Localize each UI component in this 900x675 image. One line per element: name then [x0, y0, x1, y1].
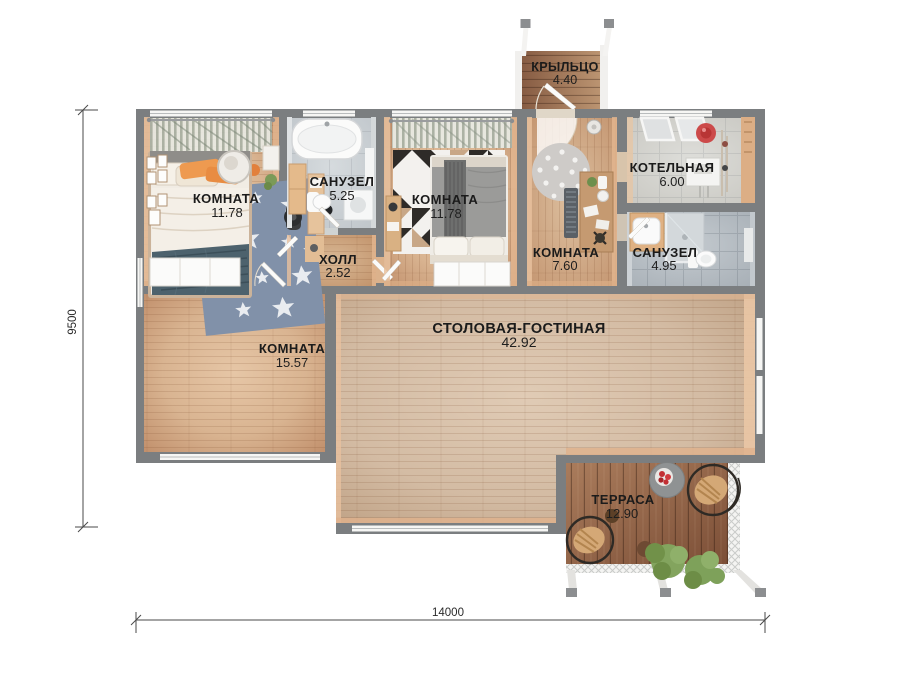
svg-text:4.95: 4.95: [651, 258, 676, 273]
svg-text:12.90: 12.90: [606, 506, 639, 521]
svg-text:КОМНАТА: КОМНАТА: [412, 192, 479, 207]
svg-text:КОМНАТА: КОМНАТА: [259, 341, 326, 356]
svg-text:42.92: 42.92: [501, 334, 536, 350]
svg-text:4.40: 4.40: [553, 73, 577, 87]
svg-text:6.00: 6.00: [659, 174, 684, 189]
svg-text:5.25: 5.25: [329, 188, 354, 203]
svg-text:КОМНАТА: КОМНАТА: [193, 191, 260, 206]
svg-text:14000: 14000: [432, 607, 464, 619]
svg-text:ТЕРРАСА: ТЕРРАСА: [591, 492, 654, 507]
svg-text:КРЫЛЬЦО: КРЫЛЬЦО: [531, 60, 599, 74]
svg-text:КОТЕЛЬНАЯ: КОТЕЛЬНАЯ: [630, 160, 715, 175]
svg-text:11.78: 11.78: [430, 206, 462, 221]
svg-text:7.60: 7.60: [552, 258, 577, 273]
svg-text:2.52: 2.52: [325, 265, 350, 280]
svg-text:9500: 9500: [67, 309, 79, 335]
svg-text:11.78: 11.78: [211, 205, 243, 220]
svg-text:САНУЗЕЛ: САНУЗЕЛ: [310, 174, 375, 189]
svg-text:15.57: 15.57: [276, 355, 309, 370]
